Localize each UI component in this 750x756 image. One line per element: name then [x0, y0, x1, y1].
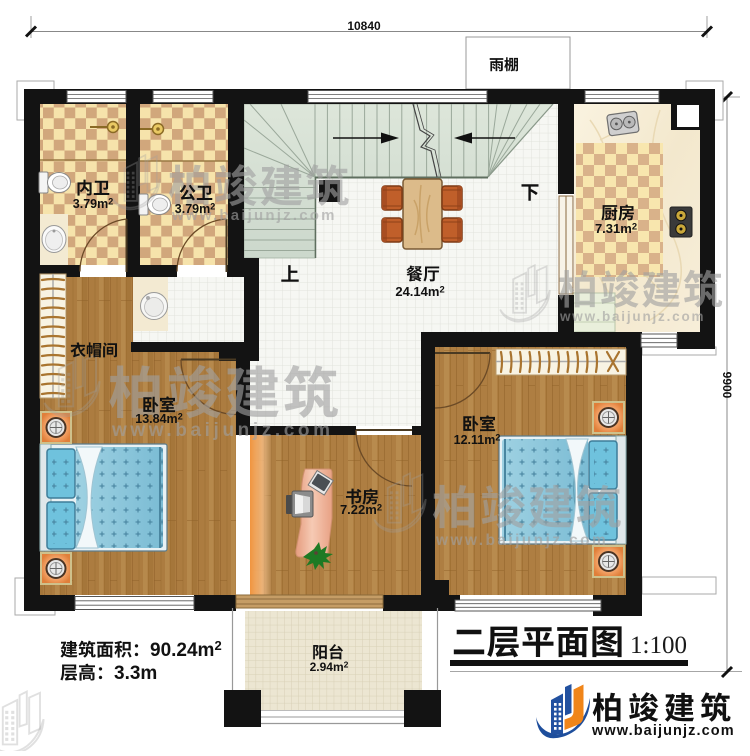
- svg-text:www.baijunjz.com: www.baijunjz.com: [591, 723, 735, 739]
- svg-text:13.84m2: 13.84m2: [135, 412, 182, 427]
- svg-text:24.14m2: 24.14m2: [395, 283, 444, 299]
- svg-text:3.79m2: 3.79m2: [73, 197, 113, 212]
- svg-text:12.11m2: 12.11m2: [454, 433, 501, 448]
- svg-text:3.3m: 3.3m: [114, 663, 157, 684]
- svg-text:www.baijunjz.com: www.baijunjz.com: [435, 532, 608, 549]
- svg-text:90.24m2: 90.24m2: [150, 638, 222, 661]
- svg-text:9900: 9900: [720, 372, 734, 399]
- svg-text:3.79m2: 3.79m2: [175, 202, 215, 217]
- svg-text:2.94m2: 2.94m2: [310, 660, 349, 674]
- svg-text:7.22m2: 7.22m2: [340, 501, 382, 517]
- svg-text:7.31m2: 7.31m2: [595, 220, 637, 236]
- svg-text:1:100: 1:100: [630, 632, 687, 659]
- svg-text:www.baijunjz.com: www.baijunjz.com: [559, 309, 705, 324]
- svg-text:10840: 10840: [347, 19, 381, 33]
